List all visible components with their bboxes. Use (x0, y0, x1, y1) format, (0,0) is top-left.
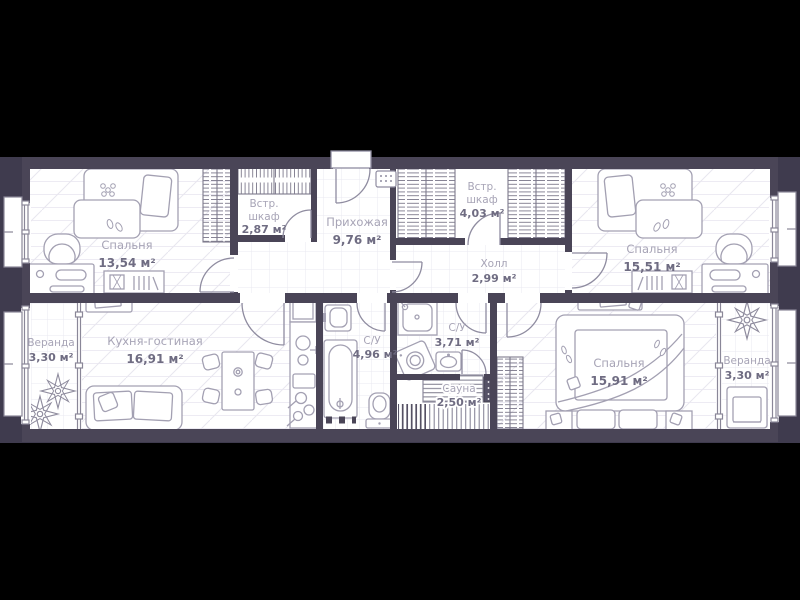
window-icon (4, 197, 31, 267)
wardrobe-icon (497, 357, 523, 429)
floor-plan: Спальня 13,54 м² Встр. шкаф 2,87 м² Прих… (0, 0, 800, 600)
veranda-armchair-icon (727, 387, 767, 428)
room-label-name: Веранда (27, 337, 74, 349)
nightstand-icon (666, 411, 692, 431)
wardrobe-icon (203, 168, 231, 242)
wardrobe-icon (508, 164, 565, 244)
room-label-name: Прихожая (326, 215, 388, 229)
room-label-name: Спальня (626, 242, 677, 256)
bookshelf-icon (104, 271, 164, 293)
room-label-name: Встр. (249, 198, 278, 210)
room-label-area: 13,54 м² (98, 256, 155, 270)
nightstand-icon (546, 411, 572, 431)
desk-icon (28, 264, 94, 297)
desk-lamp-icon (753, 271, 760, 278)
room-label-area: 15,91 м² (590, 374, 647, 388)
room-label-area: 3,71 м² (435, 336, 480, 349)
room-label-name: С/У (363, 335, 381, 347)
wardrobe-icon (398, 164, 455, 244)
room-label-name: Кухня-гостиная (107, 334, 202, 348)
room-label-name: Спальня (593, 356, 644, 370)
floor-plan-canvas: Спальня 13,54 м² Встр. шкаф 2,87 м² Прих… (0, 0, 800, 600)
room-label-name: С/У (448, 322, 466, 334)
room-label-name: Спальня (101, 238, 152, 252)
bookshelf-icon (632, 271, 692, 293)
window-icon (4, 306, 31, 424)
room-label-name: Веранда (723, 355, 770, 367)
room-label-area: 2,87 м² (242, 223, 287, 236)
cutting-board-icon (293, 374, 315, 388)
room-label-area: 16,91 м² (126, 352, 183, 366)
kitchen-counter-icon (287, 322, 318, 428)
room-label-area: 3,30 м² (29, 351, 74, 364)
desk-lamp-icon (37, 271, 44, 278)
pillow-icon (604, 175, 636, 218)
blanket-icon (74, 200, 140, 238)
room-label-area: 3,30 м² (725, 369, 770, 382)
room-label-name: Холл (480, 258, 507, 270)
duckboard-icon (398, 404, 426, 429)
sofa-icon (86, 386, 182, 430)
pillow-icon (619, 410, 657, 429)
electrical-panel-icon (376, 171, 396, 187)
pillow-icon (577, 410, 615, 429)
room-label-name: Встр. (467, 181, 496, 193)
room-label-area: 9,76 м² (333, 233, 382, 247)
pillow-icon (140, 175, 172, 218)
shower-icon (398, 300, 437, 335)
toilet-icon (366, 393, 393, 428)
room-label-area: 2,99 м² (472, 272, 517, 285)
room-label-name: шкаф (248, 211, 279, 223)
room-label-name: шкаф (466, 194, 497, 206)
armchair-icon (716, 234, 752, 264)
bathroom-sink-icon (436, 352, 461, 371)
window-icon (769, 192, 796, 266)
desk-icon (702, 264, 768, 297)
room-label-area: 4,03 м² (460, 207, 505, 220)
armchair-icon (44, 234, 80, 264)
window-icon (769, 304, 796, 422)
room-label-name: Сауна (442, 383, 475, 395)
room-label-area: 4,96 м² (353, 348, 398, 361)
bathroom-sink-icon (321, 305, 351, 331)
blanket-icon (636, 200, 702, 238)
room-label-area: 2,50 м² (437, 396, 482, 409)
room-label-area: 15,51 м² (623, 260, 680, 274)
dining-table-icon (222, 352, 254, 410)
